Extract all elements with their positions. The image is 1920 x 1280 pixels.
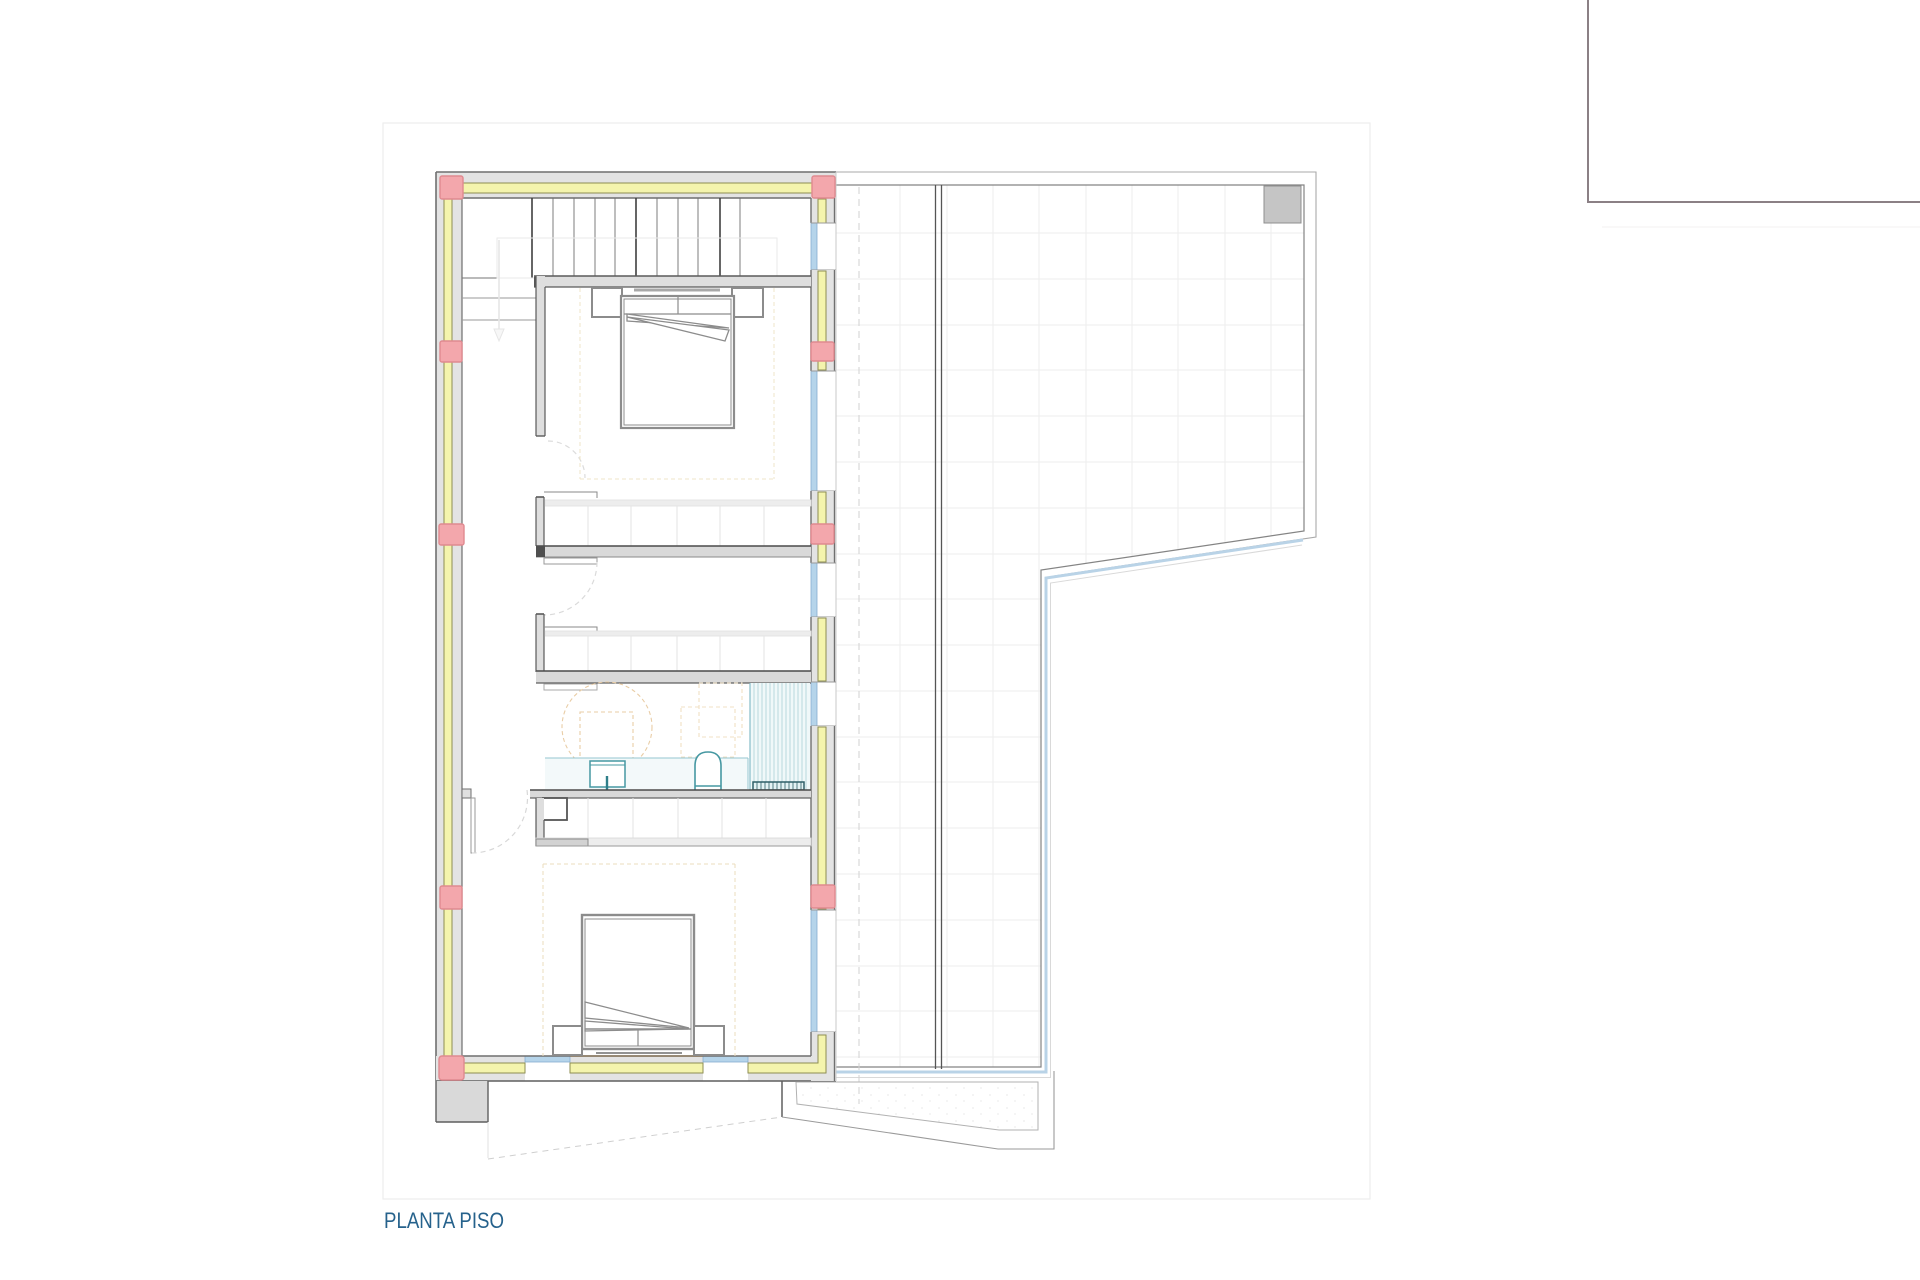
svg-text:PLANTA PISO: PLANTA PISO [384,1208,504,1233]
